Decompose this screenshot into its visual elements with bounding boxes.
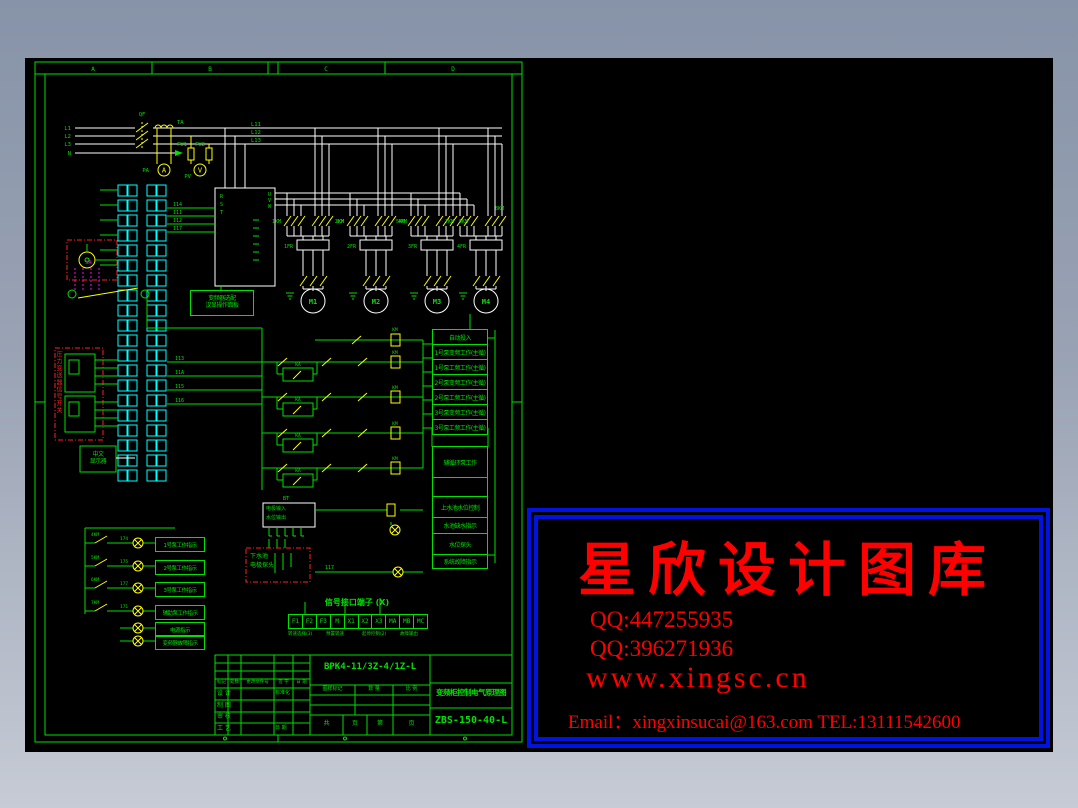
tb-date-label: 日 期 <box>275 726 287 731</box>
wire-number: 114 <box>173 202 182 208</box>
motor-branches: 1KM 2KM 3KM 4KM 5KM 6KM 7KM 8KM 1FR 2FR … <box>272 128 506 313</box>
status-box: 1号泵变频工作(主循) <box>432 344 488 360</box>
pressure-transmitter-box <box>55 348 118 440</box>
lower-tank-label2: 电极探头 <box>250 563 274 569</box>
display-box: 中文 显示器 <box>80 446 116 472</box>
wire-number: 113 <box>175 356 184 362</box>
contactor-label: 7KM <box>445 219 454 225</box>
signal-terminal-row: F1 F2 F3 M X1 X2 X3 MA MB MC <box>288 614 428 629</box>
zone-label: B <box>208 66 212 73</box>
indicator-box: 辅助泵工作指示 <box>155 605 205 620</box>
tb-row-label: 制 图 <box>217 703 231 709</box>
zone-label: C <box>324 66 328 73</box>
terminal-cell: X1 <box>344 615 358 628</box>
tb-mid-header: 图样标记 <box>310 687 355 692</box>
terminal-strips <box>118 185 166 481</box>
phase-label: L1 <box>64 126 71 132</box>
motor-label: M1 <box>309 298 317 306</box>
indicator-box: 2号泵工作指示 <box>155 560 205 575</box>
tb-sheet-cell: 页 <box>343 721 367 727</box>
indicator-box: 3号泵工作指示 <box>155 582 205 597</box>
thermal-label: 4FR <box>457 244 467 250</box>
title-block-drawing-number: ZBS-150-40-L <box>431 716 511 726</box>
thermal-label: 2FR <box>347 244 357 250</box>
rev-header-cell: 日 期 <box>293 681 310 686</box>
wire-number: 116 <box>175 398 184 404</box>
indicator-box: 变频器故障指示 <box>155 635 205 650</box>
motor-label: M4 <box>482 298 490 306</box>
power-section: A V L1 L2 L3 N QF TA PA FU1 FU2 PV L11 L… <box>64 112 502 205</box>
inverter-unit: R S T U V W 114 111 112 117 <box>167 188 275 290</box>
watermark-inner-border: 星欣设计图库 QQ:447255935 QQ:396271936 www.xin… <box>534 515 1043 741</box>
contact-label: 5KM <box>91 555 99 561</box>
lower-tank-label1: 下水池 <box>250 554 268 560</box>
status-box: 水池缺水指示 <box>432 517 488 534</box>
contactor-label: 8KM <box>495 206 504 212</box>
motor-label: M3 <box>433 298 441 306</box>
fuse-label: FU1 <box>177 142 187 148</box>
coil-label: KM <box>392 456 398 462</box>
zone-label: D <box>451 66 455 73</box>
rev-header-cell: 更改文件号 <box>241 681 274 686</box>
electrode-input-label: 电极输入 <box>266 507 286 512</box>
terminal-cell: F1 <box>289 615 302 628</box>
terminal-label: S <box>220 202 223 208</box>
contactor-label: 1KM <box>272 219 281 225</box>
watermark-contact: Email：xingxinsucai@163.com TEL:131115426… <box>568 707 961 734</box>
display-line2: 显示器 <box>90 459 107 466</box>
status-column-bottom: 辅循环泵工作 上水池水位控制 水池缺水指示 水位探头 系统故障指示 <box>432 447 488 569</box>
contactor-label: 6KM <box>459 219 468 225</box>
relay-label: KA <box>295 397 301 403</box>
wire-number: 117 <box>173 226 182 232</box>
zone-label: A <box>91 66 95 73</box>
status-box <box>432 477 488 497</box>
status-box: 1号泵工频工作(主循) <box>432 359 488 375</box>
ammeter-label: PA <box>142 168 149 174</box>
tb-mid-header: 比 例 <box>393 687 430 692</box>
terminal-label: R <box>220 194 224 200</box>
terminal-note: 起停控制(2) <box>362 631 386 637</box>
tb-sheet-cell: 共 <box>310 721 343 727</box>
thermal-relay <box>360 240 392 250</box>
bus-label: L13 <box>251 138 261 144</box>
indicator-box: 1号泵工作指示 <box>155 537 205 552</box>
bus-label: L11 <box>251 122 261 128</box>
wire-number: 171 <box>120 604 128 610</box>
terminal-note: 故障输出 <box>400 631 418 637</box>
status-box: 2号泵工频工作(主循) <box>432 389 488 405</box>
ammeter-icon: A <box>162 167 167 175</box>
wire-number: 174 <box>120 536 128 542</box>
wire-number: 11A <box>175 370 184 376</box>
voltmeter-label: PV <box>184 174 191 180</box>
coil-label: KM <box>392 350 398 356</box>
screenshot-root: { "frame": {"zones": ["A", "B", "C", "D"… <box>0 0 1078 808</box>
wire-number: 175 <box>120 559 128 565</box>
wire-number: 117 <box>325 565 334 571</box>
status-box: 水位探头 <box>432 533 488 555</box>
status-box: 上水池水位控制 <box>432 496 488 518</box>
terminal-label: W <box>268 204 272 210</box>
wire-number: 112 <box>173 218 182 224</box>
electrode-output-label: 水位输出 <box>266 516 286 521</box>
thermal-label: 3FR <box>408 244 418 250</box>
tb-row-label: 设 计 <box>217 691 231 697</box>
terminal-note: 预置转速 <box>326 631 344 637</box>
contact-label: 4KM <box>91 532 99 538</box>
voltmeter-icon: V <box>198 167 203 175</box>
relay-label: KA <box>295 433 301 439</box>
contactor-label: 5KM <box>396 219 405 225</box>
contact-label: 7KM <box>91 600 99 606</box>
rev-header-cell: 签 字 <box>274 681 293 686</box>
terminal-label: T <box>220 210 223 216</box>
coil-label: KM <box>392 385 398 391</box>
wire-number: 177 <box>120 581 128 587</box>
rev-header-cell: 标记 <box>215 681 228 686</box>
inverter-note-box: 变频器选配 汉显操作面板 <box>190 290 254 316</box>
title-block-model: BPK4-11/3Z-4/1Z-L <box>312 663 428 672</box>
status-box: 自动投入 <box>432 329 488 345</box>
neutral-label: N <box>68 151 71 157</box>
inverter-note-line2: 汉显操作面板 <box>205 303 238 310</box>
tb-sheet-cell: 第 <box>367 721 393 727</box>
title-block-drawing-title: 变频柜控制电气原理图 <box>431 689 511 697</box>
terminal-cell: X2 <box>358 615 372 628</box>
coil-label: KM <box>392 421 398 427</box>
terminal-cell: M <box>330 615 344 628</box>
thermal-relay <box>421 240 453 250</box>
tb-std-label: 标准化 <box>275 691 290 696</box>
tb-mid-header: 数 量 <box>355 687 393 692</box>
phase-label: L3 <box>64 142 71 148</box>
terminal-cell: F3 <box>316 615 330 628</box>
watermark-title: 星欣设计图库 <box>578 523 998 607</box>
status-box: 系统故障指示 <box>432 554 488 569</box>
contact-label: 6KM <box>91 577 99 583</box>
bus-label: L12 <box>251 130 261 136</box>
watermark-panel: 星欣设计图库 QQ:447255935 QQ:396271936 www.xin… <box>527 508 1050 748</box>
relay-label: KA <box>295 362 301 368</box>
motor-label: M2 <box>372 298 380 306</box>
fuse-label: FU2 <box>195 142 205 148</box>
wire-number: 111 <box>173 210 182 216</box>
tb-row-label: 工 艺 <box>217 726 231 732</box>
thermal-label: 1FR <box>284 244 294 250</box>
coil-label: KM <box>392 327 398 333</box>
relay-label: KA <box>295 468 301 474</box>
phase-label: L2 <box>64 134 71 140</box>
pressure-transmitter-label: 压力变送器信号开关 <box>55 351 61 439</box>
status-box: 3号泵工频工作(主循) <box>432 419 488 435</box>
frame-zone-labels: A B C D <box>91 66 455 73</box>
thermal-relay <box>470 240 502 250</box>
terminal-cell: MC <box>413 615 427 628</box>
breaker-label: QF <box>139 112 146 118</box>
signal-table-title: 信号接口端子 (X) <box>288 599 426 607</box>
terminal-cell: X3 <box>371 615 385 628</box>
strip-stub-wires <box>100 190 118 265</box>
watermark-qq2: QQ:396271936 <box>590 636 733 662</box>
contactor-label: 3KM <box>335 219 344 225</box>
status-box: 2号泵变频工作(主循) <box>432 374 488 390</box>
thermal-relay <box>297 240 329 250</box>
watermark-qq1: QQ:447255935 <box>590 607 733 633</box>
watermark-website: www.xingsc.cn <box>586 661 810 695</box>
status-box: 辅循环泵工作 <box>432 446 488 478</box>
ct-label: TA <box>177 120 184 126</box>
terminal-cell: MA <box>385 615 399 628</box>
status-box: 3号泵变频工作(主循) <box>432 404 488 420</box>
terminal-note: 转速选择(3) <box>288 631 312 637</box>
terminal-cell: MB <box>399 615 413 628</box>
terminal-cell: F2 <box>302 615 316 628</box>
tb-sheet-cell: 页 <box>393 721 430 727</box>
wire-number: 115 <box>175 384 184 390</box>
tb-row-label: 审 核 <box>217 714 231 720</box>
rev-header-cell: 处数 <box>228 681 241 686</box>
status-column-top: 自动投入 1号泵变频工作(主循) 1号泵工频工作(主循) 2号泵变频工作(主循)… <box>432 330 488 435</box>
bt-label: BT <box>283 496 289 502</box>
